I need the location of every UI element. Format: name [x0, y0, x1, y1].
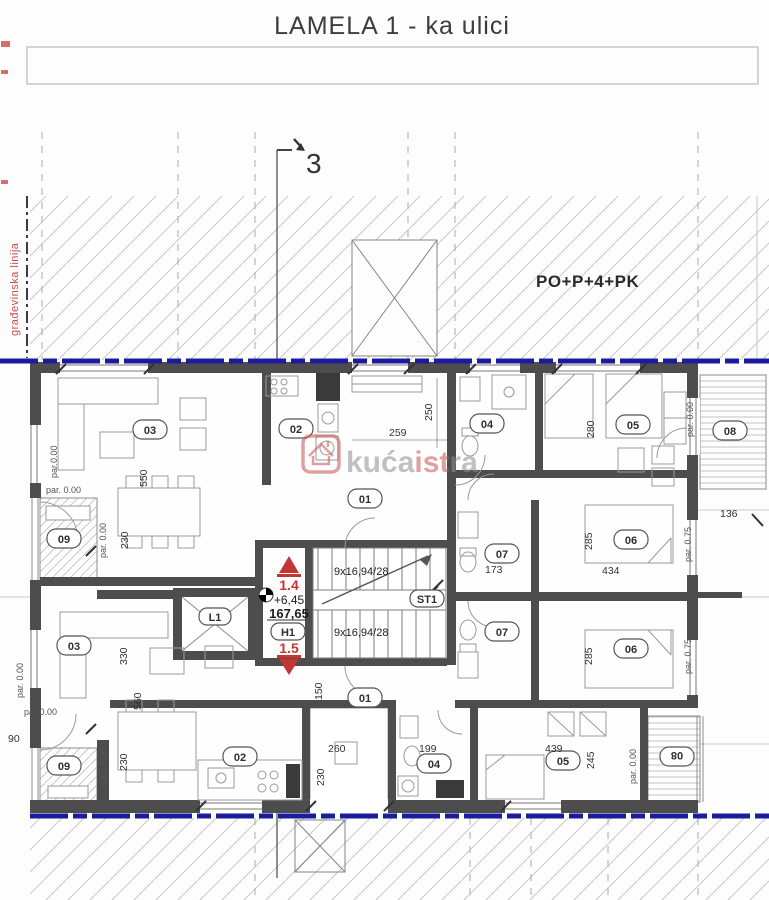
- svg-text:03: 03: [68, 641, 80, 653]
- dim-285-upper: 285: [583, 532, 595, 550]
- par-balcony-left-bottom: par. 0.00: [98, 748, 108, 783]
- dim-260: 260: [328, 743, 346, 755]
- elevator: L1: [182, 597, 248, 651]
- room-label-hall-top: 01: [348, 489, 382, 508]
- room-label-bedroom-top: 05: [616, 415, 650, 434]
- par-balcony-left-top: par. 0.00: [98, 523, 108, 558]
- par-left-horizontal-bottom: par 0.00: [24, 707, 57, 717]
- elevator-label: L1: [209, 612, 222, 624]
- dim-439: 439: [545, 743, 563, 755]
- room-label-balcony-right-top: 08: [713, 421, 747, 440]
- room-label-living-top: 03: [133, 420, 167, 439]
- room-label-balcony-right-bottom: 08: [660, 747, 694, 766]
- svg-text:07: 07: [496, 627, 508, 639]
- dim-90: 90: [8, 733, 20, 745]
- stair-label: ST1: [417, 594, 437, 606]
- dim-173: 173: [485, 564, 503, 576]
- stair-run-bottom-label: 9x16,94/28: [334, 627, 388, 639]
- room-label-bath-bottom: 04: [417, 754, 451, 773]
- area-value: 167,65: [269, 606, 309, 621]
- svg-text:05: 05: [627, 420, 639, 432]
- dim-434: 434: [602, 565, 620, 577]
- svg-text:04: 04: [428, 759, 441, 771]
- svg-text:09: 09: [58, 534, 70, 546]
- par-balcony-right-top: par. 0.00: [685, 402, 695, 437]
- watermark-text-2: ist: [414, 446, 449, 479]
- par-left-window-bottom: par. 0.00: [15, 663, 25, 698]
- room-label-kitchen-bottom: 02: [223, 747, 257, 766]
- par-right-window-lower: par. 0.75: [683, 639, 693, 674]
- dim-199: 199: [419, 743, 437, 755]
- dim-245: 245: [585, 751, 597, 769]
- par-balcony-right-bottom: par. 0.00: [628, 749, 638, 784]
- par-left-horizontal-top: par. 0.00: [46, 485, 81, 495]
- svg-text:01: 01: [359, 693, 371, 705]
- room-label-bath-mid-upper: 07: [485, 544, 519, 563]
- room-label-living-bottom: 03: [57, 636, 91, 655]
- dim-259: 259: [389, 427, 407, 439]
- svg-text:03: 03: [144, 425, 156, 437]
- dim-136: 136: [720, 508, 738, 520]
- room-label-balcony-left-top: 09: [47, 529, 81, 548]
- svg-text:09: 09: [58, 761, 70, 773]
- svg-text:05: 05: [557, 756, 569, 768]
- par-right-window-upper: par. 0.75: [683, 527, 693, 562]
- dim-230-left-top: 230: [119, 531, 131, 549]
- dim-250: 250: [423, 403, 435, 421]
- room-label-bedroom-mid-upper: 06: [614, 530, 648, 549]
- dim-150: 150: [313, 682, 325, 700]
- dim-550: 550: [138, 469, 150, 487]
- par-left-window-top: par.0.00: [49, 445, 59, 478]
- svg-text:07: 07: [496, 549, 508, 561]
- page-title: LAMELA 1 - ka ulici: [274, 12, 510, 40]
- svg-text:02: 02: [234, 752, 246, 764]
- svg-text:04: 04: [481, 419, 494, 431]
- elevation-value: +6,45: [274, 593, 305, 607]
- unit-label: H1: [281, 627, 295, 639]
- dim-230-loggia: 230: [315, 768, 327, 786]
- floors-label: PO+P+4+PK: [536, 272, 639, 291]
- floor-plan-page: LAMELA 1 - ka ulici 3 građevinska linija…: [0, 0, 769, 900]
- dim-560: 560: [132, 692, 144, 710]
- stair-run-top-label: 9x16,94/28: [334, 566, 388, 578]
- floor-plan-drawing: LAMELA 1 - ka ulici 3 građevinska linija…: [0, 0, 769, 900]
- room-label-bath-mid-lower: 07: [485, 622, 519, 641]
- level-down-label: 1.5: [279, 640, 299, 656]
- section-number: 3: [306, 148, 322, 179]
- level-up-label: 1.4: [279, 577, 299, 593]
- room-label-bedroom-mid-lower: 06: [614, 639, 648, 658]
- dim-285-lower: 285: [583, 647, 595, 665]
- shaft-box-top: [352, 240, 437, 356]
- dim-330: 330: [118, 647, 130, 665]
- svg-text:02: 02: [290, 424, 302, 436]
- svg-text:kućaistra: kućaistra: [346, 446, 478, 479]
- dim-280: 280: [585, 420, 597, 438]
- svg-text:08: 08: [724, 426, 736, 438]
- svg-text:01: 01: [359, 494, 371, 506]
- svg-text:06: 06: [625, 644, 637, 656]
- watermark-text-1: kuća: [346, 446, 415, 479]
- loggia-bottom: [310, 708, 388, 807]
- building-line-label: građevinska linija: [9, 242, 21, 336]
- svg-text:08: 08: [671, 749, 683, 761]
- room-label-balcony-left-bottom: 09: [47, 756, 81, 775]
- dim-230-left-bottom: 230: [118, 753, 130, 771]
- watermark-text-3: ra: [449, 446, 478, 479]
- room-label-hall-bottom: 01: [348, 688, 382, 707]
- room-label-bath-top: 04: [470, 414, 504, 433]
- svg-text:06: 06: [625, 535, 637, 547]
